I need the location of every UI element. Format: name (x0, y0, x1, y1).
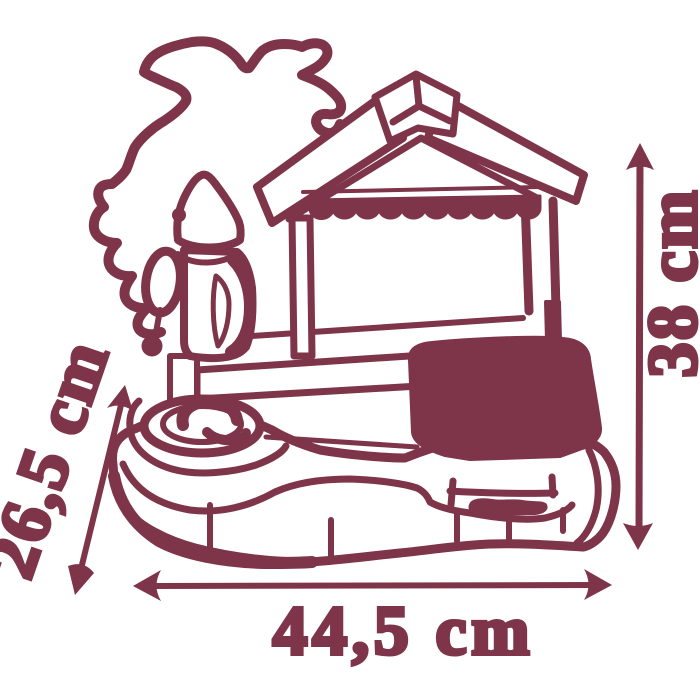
svg-text:44,5 cm: 44,5 cm (273, 593, 530, 670)
svg-text:38 cm: 38 cm (635, 191, 700, 378)
